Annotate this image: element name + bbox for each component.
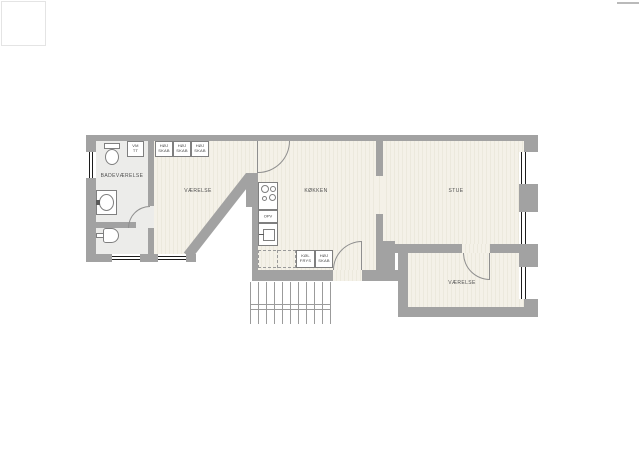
- bathroom-sink-basin: [99, 194, 114, 211]
- entry-door-gap: [333, 270, 362, 281]
- cabinet-label: SKAB: [176, 149, 187, 154]
- burner: [262, 196, 267, 201]
- washer-label-line2: TT: [133, 149, 138, 154]
- kitchen-sink: [258, 223, 278, 246]
- window-right-1: [519, 152, 538, 184]
- wall-right-seg4: [524, 299, 538, 317]
- stove: [258, 182, 278, 210]
- window-left: [86, 152, 96, 178]
- burner: [270, 186, 276, 192]
- burner: [269, 194, 276, 201]
- room-label-bathroom: BADEVÆRELSE: [101, 173, 144, 179]
- floorplan-page: VM TT HØJ SKAB HØJ SKAB HØJ SKAB OPV KØL…: [0, 0, 640, 453]
- window-bottom-1: [112, 254, 140, 262]
- cabinet-label: SKAB: [158, 149, 169, 154]
- room-label-living: STUE: [449, 188, 464, 194]
- wall-bathroom-right-upper: [148, 141, 154, 206]
- crop-mark-top-right: [617, 2, 639, 4]
- tall-cabinet-1: HØJ SKAB: [155, 141, 173, 157]
- wall-left-lower: [86, 178, 96, 254]
- crop-mark-top-left: [1, 1, 46, 46]
- utility-basin: [103, 228, 119, 243]
- stairs-rail-2: [250, 309, 331, 310]
- wall-bathroom-right-lower: [148, 228, 154, 254]
- tall-cabinet-kitchen: HØJ SKAB: [315, 250, 333, 268]
- fridge-label-line2: FRYS: [300, 259, 311, 264]
- window-right-3: [519, 267, 538, 299]
- wall-right-seg3: [519, 244, 538, 267]
- room-label-bedroom-right: VÆRELSE: [448, 280, 476, 286]
- wall-bottom-left-a: [86, 254, 112, 262]
- wall-kitchen-bottom: [252, 270, 333, 281]
- room-label-kitchen: KØKKEN: [304, 188, 327, 194]
- bedroom-right-door-leaf: [489, 253, 490, 280]
- wall-left-upper: [86, 141, 96, 152]
- burner: [261, 185, 269, 193]
- wall-right-seg2: [519, 184, 538, 212]
- wall-bedroom-right-top-a: [376, 244, 462, 253]
- bedroom-right-door-gap: [462, 244, 490, 253]
- window-right-2: [519, 212, 538, 244]
- toilet-bowl: [105, 149, 119, 165]
- kitchen-living-opening-floor: [376, 176, 383, 214]
- cabinet-label: SKAB: [194, 149, 205, 154]
- cabinet-label: SKAB: [318, 259, 329, 264]
- wall-right-seg1: [524, 141, 538, 152]
- kitchen-sink-basin: [263, 229, 275, 241]
- bathroom-sink-tap: [96, 200, 100, 205]
- wall-bedroom-right-bottom: [398, 307, 538, 317]
- dishwasher-label: OPV: [264, 214, 272, 219]
- exterior-stairs: [250, 282, 331, 324]
- stairs-rail-1: [250, 304, 331, 305]
- wall-bottom-left-b: [140, 254, 158, 262]
- counter-dashed-divider: [277, 250, 278, 268]
- wall-kitchen-pillar: [246, 173, 258, 207]
- entry-door-leaf: [361, 241, 362, 270]
- kitchen-sink-tap: [259, 234, 264, 235]
- wall-bedroom-right-left: [398, 253, 408, 307]
- tall-cabinet-3: HØJ SKAB: [191, 141, 209, 157]
- washer-dryer-closet: VM TT: [127, 141, 144, 157]
- window-bottom-2: [158, 254, 186, 262]
- wall-kitchen-living-upper: [376, 141, 383, 176]
- bedroom-left-door-leaf: [257, 141, 258, 173]
- room-label-bedroom-left: VÆRELSE: [184, 188, 212, 194]
- tall-cabinet-2: HØJ SKAB: [173, 141, 191, 157]
- fridge-freezer: KØL FRYS: [296, 250, 315, 268]
